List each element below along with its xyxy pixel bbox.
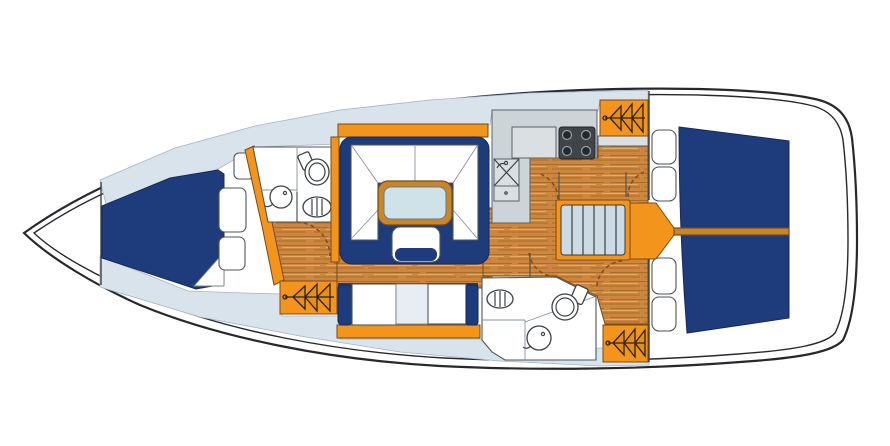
saloon-stool [392, 227, 440, 262]
side-shelf-cushion-2 [219, 237, 245, 270]
port-settee-base-board [337, 325, 480, 338]
stove-icon [559, 127, 595, 159]
hanging-locker-galley [600, 100, 648, 136]
hanging-locker-forward [280, 281, 337, 314]
saloon-table [378, 181, 452, 225]
saloon [331, 124, 489, 264]
galley-aft-shelf [598, 136, 648, 146]
floorplan-canvas [0, 0, 890, 446]
galley-worktop [512, 127, 556, 158]
oval-basin-icon-aft [487, 290, 513, 308]
galley-sink-icon [494, 159, 519, 186]
port-settee-arm-right [466, 285, 478, 325]
galley-drawers [494, 186, 519, 201]
aft-shelf-cushion-2 [652, 167, 676, 201]
side-shelf-cushion-1 [219, 188, 246, 232]
oval-basin-icon-forward [303, 197, 331, 217]
yacht-interior-floorplan [0, 0, 890, 446]
port-settee-cushion-2 [428, 284, 466, 324]
port-settee-mid-panel [396, 284, 428, 324]
port-settee [337, 283, 480, 338]
saloon-sideboard [338, 124, 488, 137]
aft-shelf-cushion-3 [652, 258, 676, 294]
saloon-forward-bulkhead [331, 137, 339, 262]
port-settee-cushion-1 [352, 284, 396, 325]
hanging-locker-aft [603, 325, 648, 362]
port-settee-arm-left [338, 285, 352, 325]
aft-berth-divider [674, 228, 789, 235]
aft-shelf-cushion-4 [652, 297, 676, 331]
aft-shelf-cushion-1 [652, 130, 676, 164]
